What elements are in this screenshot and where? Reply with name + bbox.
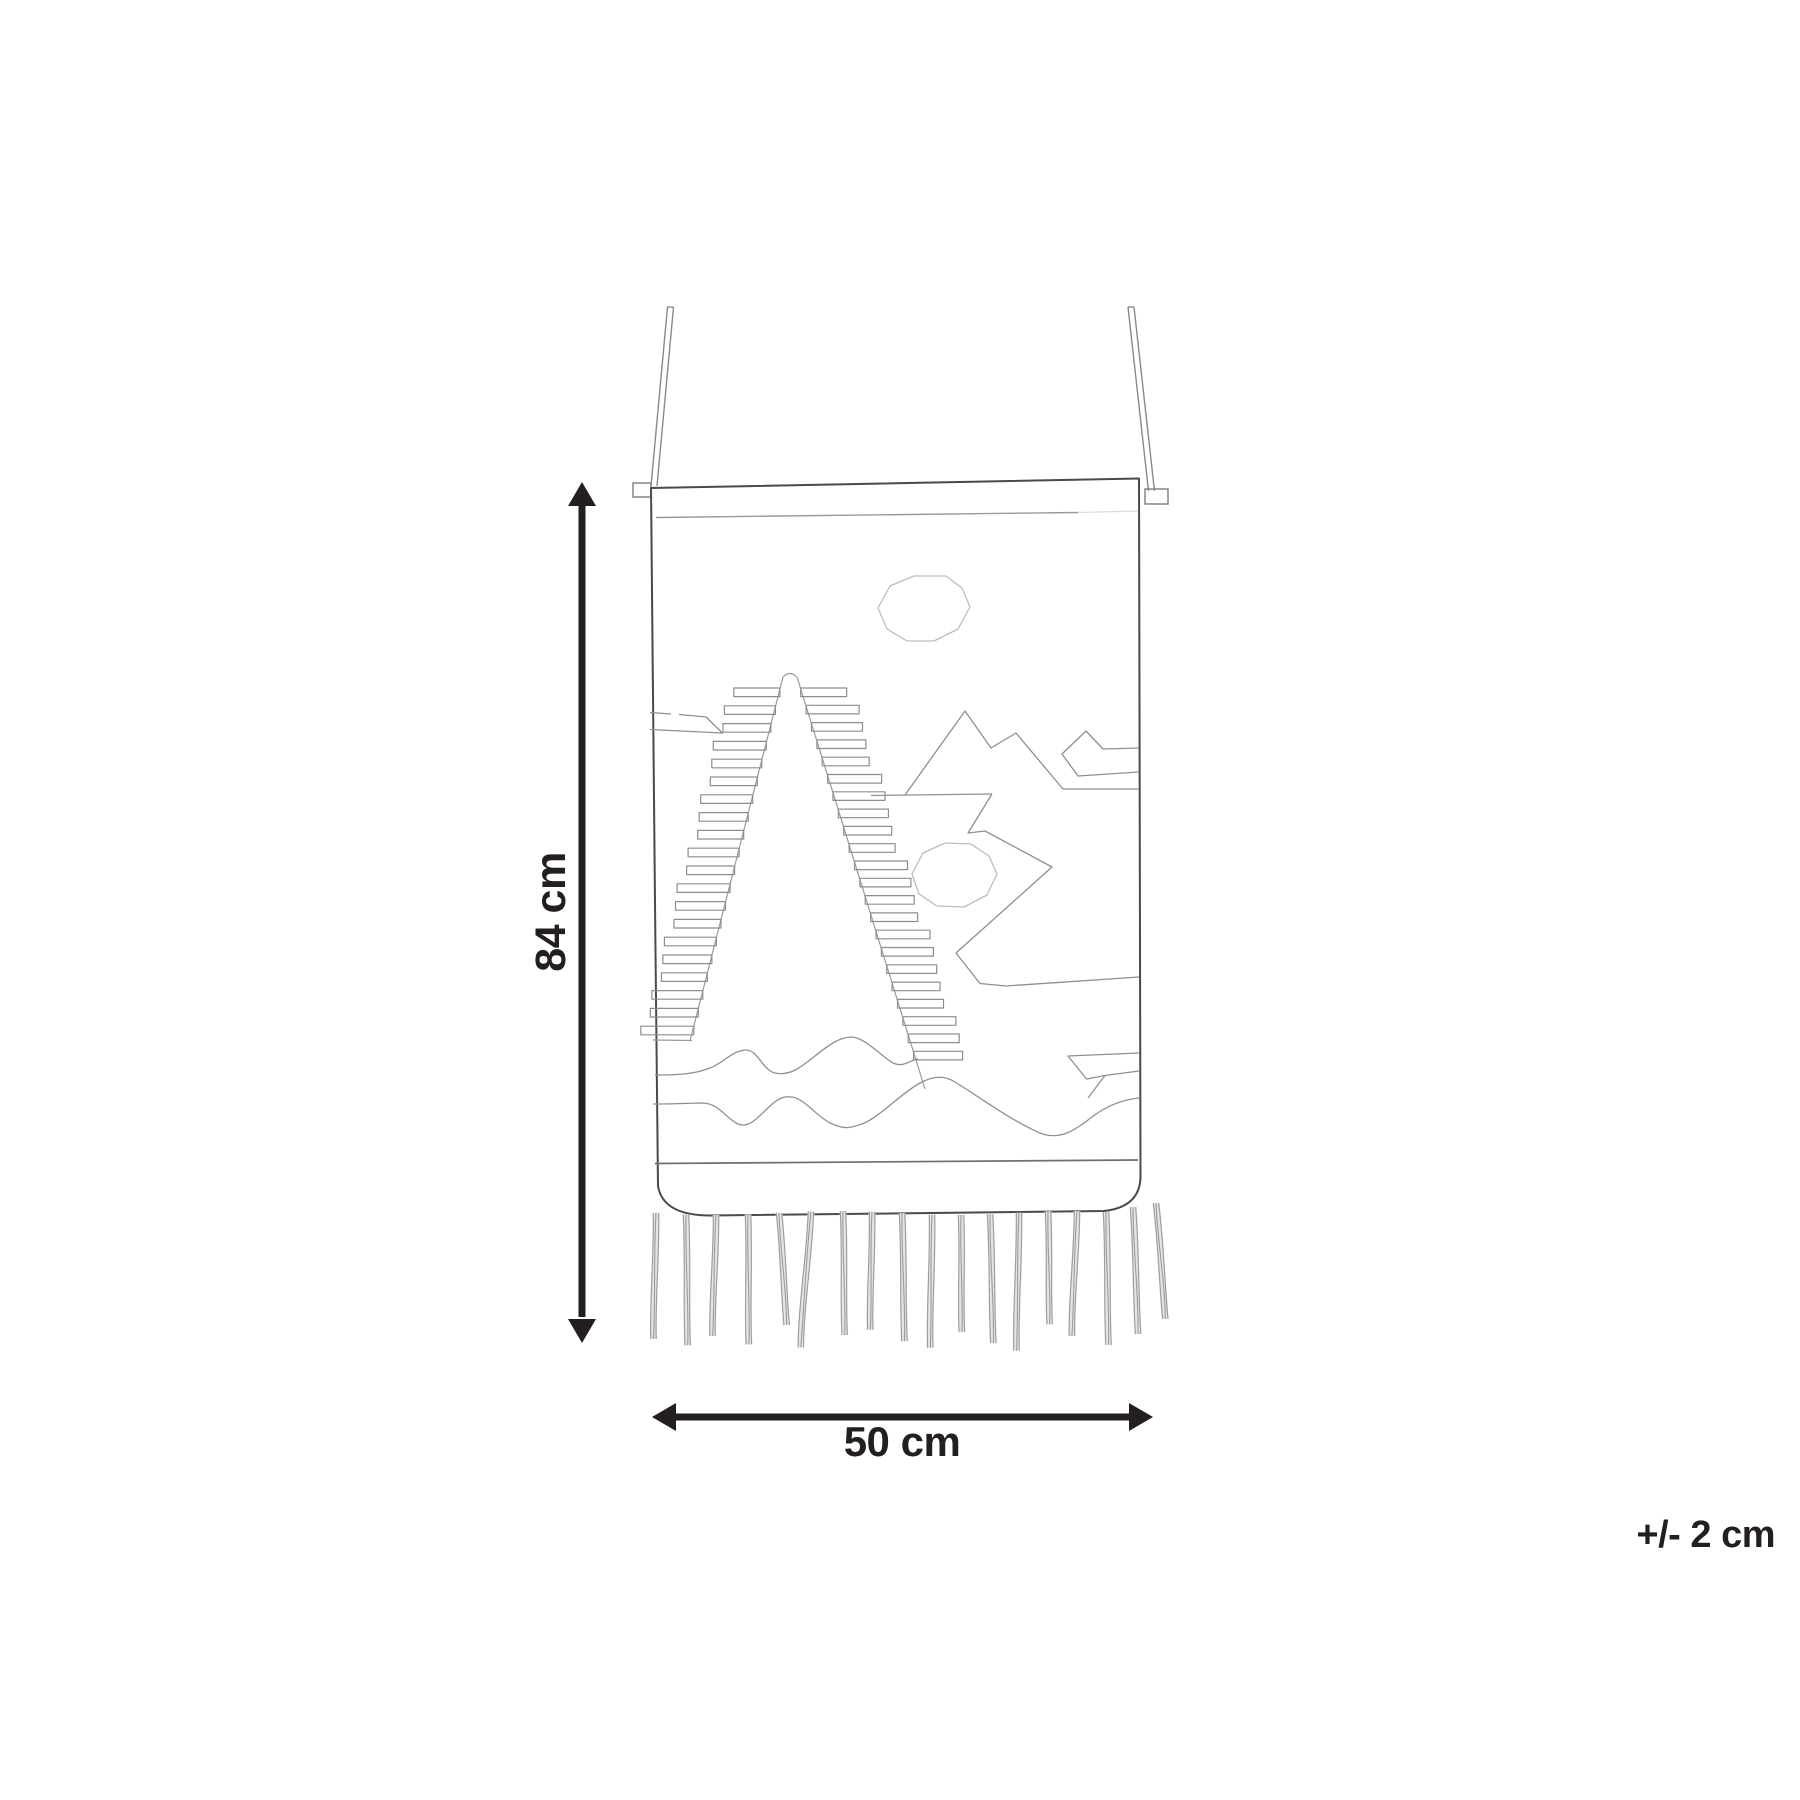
panel-hem-line: [655, 1160, 1138, 1164]
hanging-cord-left: [651, 307, 674, 486]
arrowhead-left: [652, 1403, 676, 1431]
fringe-strand: [798, 1212, 814, 1348]
fringe-strand: [1153, 1203, 1168, 1319]
panel-inner-top-line: [656, 513, 1078, 518]
width-dimension-label: 50 cm: [802, 1419, 1002, 1465]
rod-tab-right: [1145, 489, 1168, 504]
hanging-cord-right: [1128, 307, 1155, 491]
product-dimension-diagram: 84 cm 50 cm +/- 2 cm: [0, 0, 1800, 1800]
octagon-motif-top: [878, 576, 970, 641]
fringe-strand: [1130, 1207, 1141, 1334]
wavy-line-lower: [653, 1077, 1139, 1135]
tapestry-pattern: [641, 576, 1139, 1136]
fringe-strand: [776, 1213, 789, 1325]
wavy-line-upper: [655, 1037, 918, 1075]
ladder-rungs-right: [801, 688, 963, 1060]
rod-tab-left: [633, 483, 651, 497]
fringe-strand: [1103, 1212, 1111, 1345]
banner-motif-left: [650, 713, 723, 734]
lightning-zigzag-motif: [956, 794, 1139, 986]
fringe-strand: [651, 1213, 659, 1339]
octagon-motif-middle: [912, 843, 997, 907]
arrowhead-up: [568, 482, 596, 506]
ladder-rungs-left: [641, 688, 780, 1035]
fringe-strand: [927, 1215, 935, 1348]
height-dimension-label: 84 cm: [526, 812, 576, 1012]
fringe-strand: [987, 1214, 996, 1343]
fringe-strand: [710, 1215, 719, 1336]
chevron-motif-right: [1062, 731, 1139, 776]
fringe-strand: [899, 1213, 907, 1341]
tolerance-label: +/- 2 cm: [1525, 1513, 1775, 1557]
fringe-strand: [840, 1211, 847, 1335]
fringe-strand: [867, 1212, 875, 1330]
fringe-strand: [683, 1214, 690, 1345]
arrowhead-right: [1129, 1403, 1153, 1431]
mountain-zigzag-motif: [871, 711, 1139, 796]
fringe-strand: [1045, 1211, 1052, 1324]
tapestry-panel: [651, 479, 1141, 1216]
fringe-strand: [1069, 1211, 1080, 1336]
fringe-strand: [958, 1215, 964, 1332]
fringe-strand: [745, 1214, 751, 1344]
arrow-motif-bottom-right: [1068, 1053, 1139, 1098]
arrowhead-down: [568, 1319, 596, 1343]
fringe-tassels: [651, 1203, 1168, 1351]
fringe-strand: [1014, 1213, 1022, 1351]
